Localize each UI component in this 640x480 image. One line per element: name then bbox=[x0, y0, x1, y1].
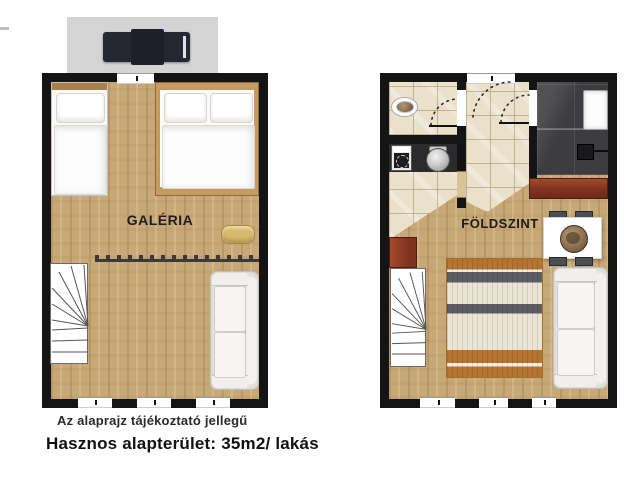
roof-window-icon bbox=[103, 32, 190, 62]
foldszint-bottom-window-3 bbox=[532, 397, 556, 408]
shower-room bbox=[537, 82, 608, 175]
foldszint-sofa bbox=[553, 267, 608, 389]
wc-kitchen-wall bbox=[389, 135, 457, 144]
shower-tray bbox=[583, 90, 608, 130]
gallery-railing bbox=[95, 255, 259, 262]
chair bbox=[549, 257, 567, 266]
entry-opening bbox=[467, 73, 515, 84]
shower-fixture-icon bbox=[577, 144, 594, 160]
foldszint-bottom-window-1 bbox=[420, 397, 455, 408]
bed-headboard bbox=[52, 83, 107, 90]
striped-daybed bbox=[446, 258, 543, 378]
pouf bbox=[221, 225, 255, 244]
foldszint-bottom-window-2 bbox=[479, 397, 508, 408]
kitchen-counter bbox=[389, 144, 457, 172]
double-bed bbox=[155, 82, 259, 196]
staircase-steps-icon bbox=[391, 269, 427, 368]
single-bed bbox=[51, 82, 108, 196]
galeria-top-window bbox=[117, 73, 154, 84]
foldszint-label: FÖLDSZINT bbox=[450, 216, 550, 231]
wardrobe bbox=[389, 237, 417, 268]
kitchen-sink bbox=[426, 148, 450, 172]
foldszint-staircase bbox=[390, 268, 426, 367]
chair bbox=[575, 257, 593, 266]
bowl-icon bbox=[560, 225, 588, 253]
floorplan-canvas: GALÉRIA bbox=[0, 0, 640, 480]
galeria-floor-plan: GALÉRIA bbox=[42, 73, 268, 408]
galeria-bottom-window-3 bbox=[196, 397, 230, 408]
staircase bbox=[50, 263, 88, 364]
dining-table bbox=[543, 217, 602, 259]
red-cabinet bbox=[529, 178, 608, 199]
hallway-right-wall bbox=[529, 82, 537, 178]
wc-room bbox=[389, 82, 457, 135]
galeria-label: GALÉRIA bbox=[104, 212, 216, 228]
stove-icon bbox=[391, 145, 412, 171]
hallway-left-wall bbox=[457, 82, 466, 208]
galeria-bottom-window-2 bbox=[137, 397, 171, 408]
toilet bbox=[391, 97, 418, 117]
disclaimer-text: Az alaprajz tájékoztató jellegű bbox=[57, 413, 247, 428]
staircase-steps-icon bbox=[51, 264, 89, 365]
roof-terrace-box bbox=[67, 17, 218, 74]
foldszint-floor-plan: FÖLDSZINT bbox=[380, 73, 617, 408]
usable-area-text: Hasznos alapterület: 35m2/ lakás bbox=[46, 434, 319, 454]
galeria-bottom-window-1 bbox=[78, 397, 112, 408]
edge-artifact bbox=[0, 27, 9, 30]
kitchen-door bbox=[457, 171, 466, 198]
galeria-sofa bbox=[210, 271, 259, 390]
